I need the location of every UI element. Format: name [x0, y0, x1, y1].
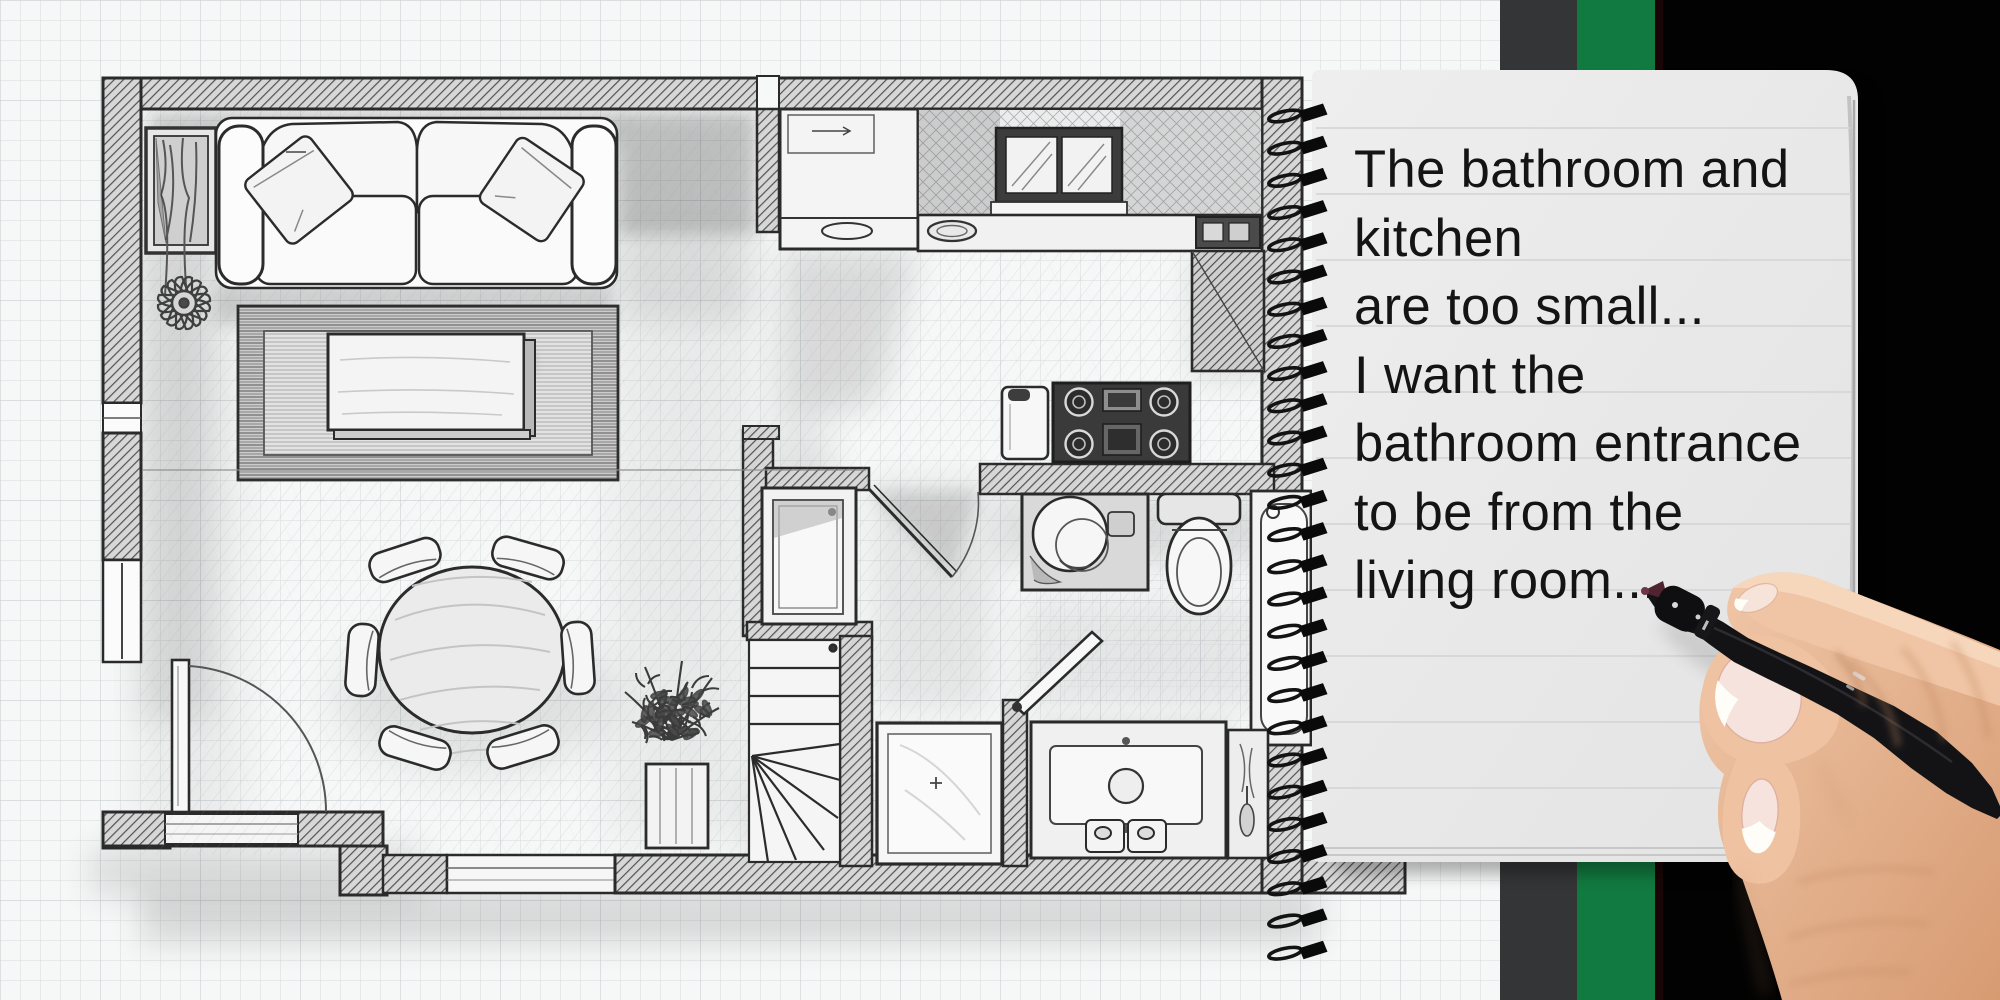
- svg-text:are too small...: are too small...: [1354, 277, 1705, 336]
- svg-text:The bathroom and: The bathroom and: [1354, 140, 1789, 199]
- svg-text:kitchen: kitchen: [1354, 209, 1523, 268]
- svg-text:I want the: I want the: [1354, 346, 1586, 405]
- svg-text:bathroom entrance: bathroom entrance: [1354, 414, 1802, 473]
- svg-text:living room...: living room...: [1354, 551, 1657, 610]
- svg-text:to be from the: to be from the: [1354, 483, 1684, 542]
